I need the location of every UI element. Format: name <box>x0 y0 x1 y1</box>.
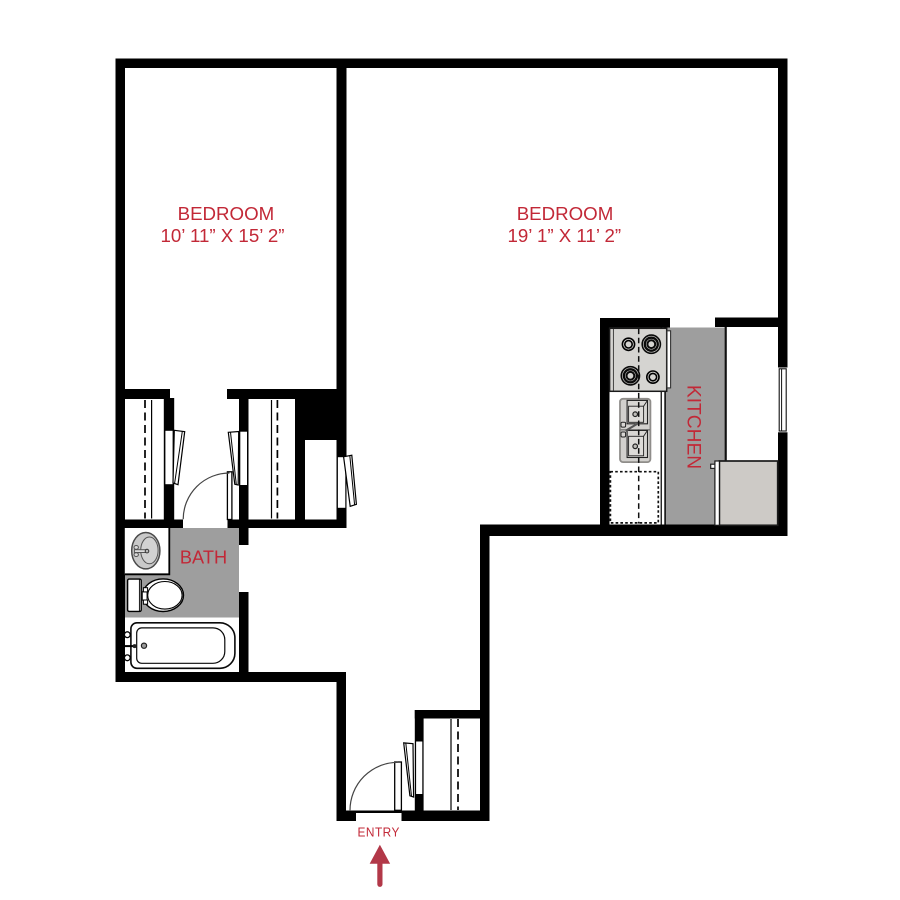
svg-text:19’ 1” X 11’ 2”: 19’ 1” X 11’ 2” <box>508 225 622 246</box>
svg-text:ENTRY: ENTRY <box>358 825 400 840</box>
svg-text:10’ 11” X 15’ 2”: 10’ 11” X 15’ 2” <box>161 225 285 246</box>
svg-text:BEDROOM: BEDROOM <box>517 203 614 224</box>
svg-text:BATH: BATH <box>180 548 227 568</box>
svg-text:KITCHEN: KITCHEN <box>683 385 704 469</box>
svg-text:BEDROOM: BEDROOM <box>178 203 275 224</box>
